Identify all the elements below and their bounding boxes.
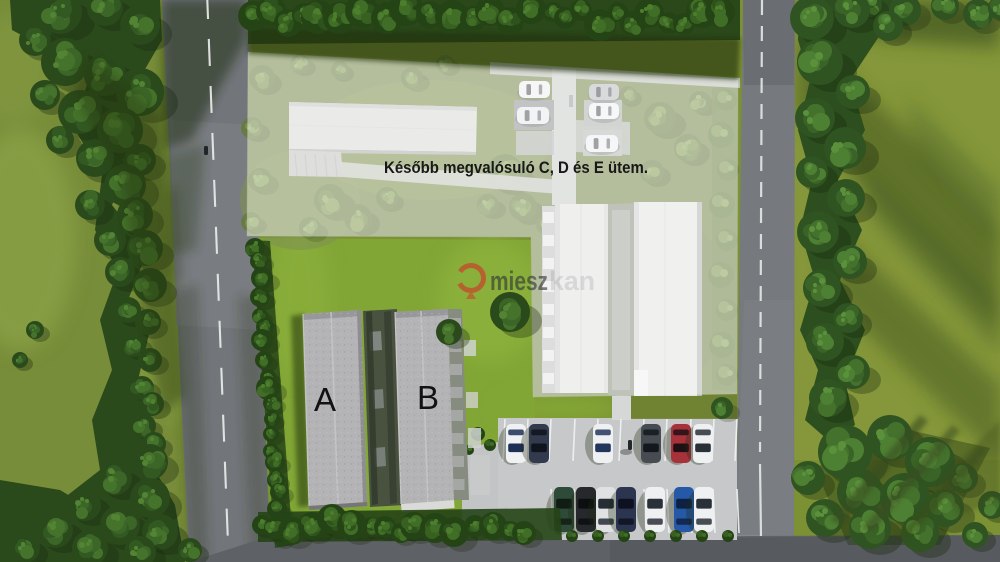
svg-text:miesz: miesz	[490, 266, 548, 296]
svg-text:A: A	[314, 381, 336, 418]
svg-text:kan: kan	[549, 266, 595, 296]
svg-text:Később megvalósuló C, D és E ü: Később megvalósuló C, D és E ütem.	[384, 158, 648, 177]
svg-text:B: B	[417, 379, 439, 416]
